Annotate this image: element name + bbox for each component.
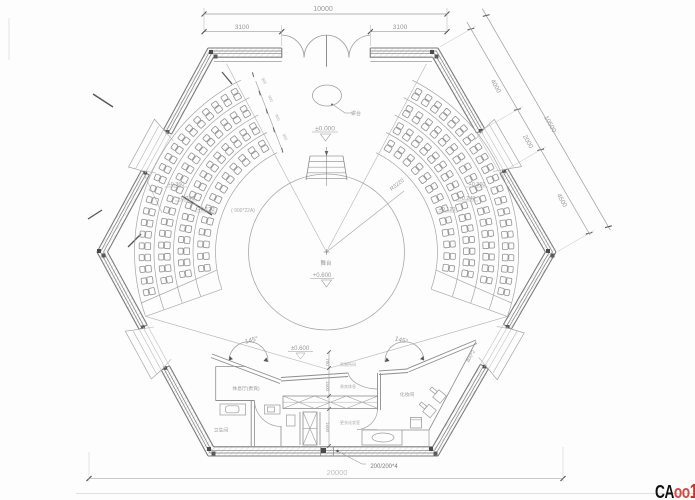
svg-text:10500: 10500: [542, 115, 557, 134]
svg-text:休息厅(贵宾): 休息厅(贵宾): [232, 385, 260, 392]
svg-text:3100: 3100: [235, 24, 250, 31]
svg-text:900: 900: [274, 113, 282, 122]
svg-text:R3220: R3220: [389, 178, 405, 193]
svg-text:1600: 1600: [325, 422, 330, 433]
svg-text:4000: 4000: [489, 78, 502, 94]
svg-text:化妆间: 化妆间: [400, 391, 415, 398]
svg-text:700: 700: [325, 358, 330, 366]
svg-text:20000: 20000: [327, 468, 348, 477]
svg-text:±0.600: ±0.600: [291, 346, 310, 352]
svg-text:更衣化妆室: 更衣化妆室: [340, 419, 360, 425]
svg-text:900: 900: [267, 95, 275, 104]
svg-text:男厕所间: 男厕所间: [340, 361, 356, 367]
svg-text:卫生间: 卫生间: [214, 427, 229, 434]
svg-text:145°: 145°: [394, 335, 409, 346]
svg-text:900: 900: [281, 133, 289, 142]
svg-text:10000: 10000: [313, 6, 333, 13]
svg-text:贵宾休息: 贵宾休息: [340, 383, 356, 389]
svg-text:( 900*22A): ( 900*22A): [231, 208, 255, 214]
svg-text:舞台: 舞台: [320, 259, 332, 267]
svg-text:±0.000: ±0.000: [315, 126, 335, 133]
svg-text:讲台: 讲台: [351, 110, 361, 117]
svg-text:2000: 2000: [521, 134, 534, 150]
svg-text:+0.600: +0.600: [313, 273, 332, 279]
svg-text:200/200*4: 200/200*4: [370, 464, 398, 470]
svg-text:3100: 3100: [393, 24, 408, 31]
svg-text:900: 900: [260, 77, 268, 86]
svg-text:1500: 1500: [325, 381, 330, 392]
svg-text:800*2: 800*2: [465, 349, 477, 364]
svg-text:CAoo1: CAoo1: [655, 480, 695, 500]
svg-text:4500: 4500: [555, 193, 568, 209]
